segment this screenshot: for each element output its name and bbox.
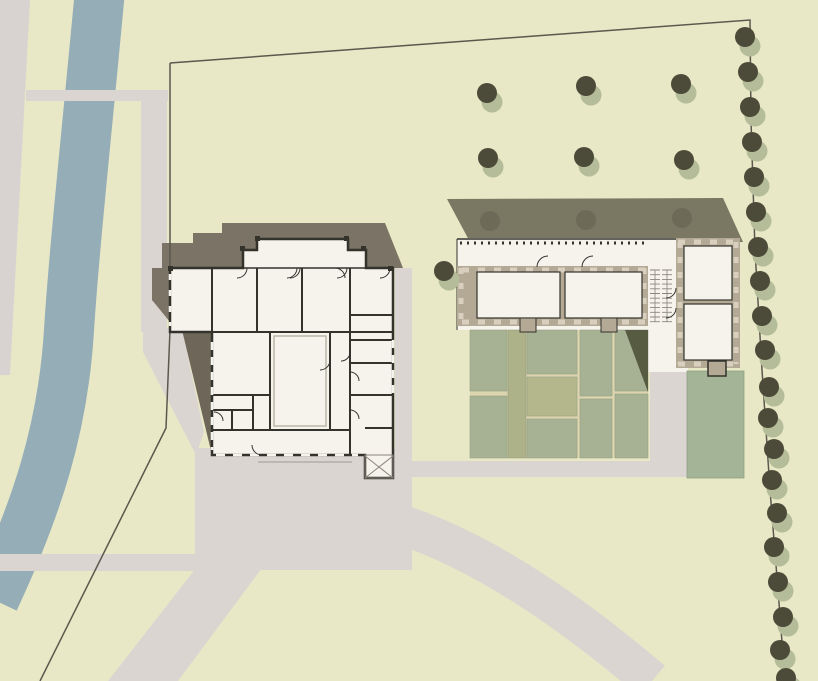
tree-icon: [477, 83, 497, 103]
tree-icon: [576, 76, 596, 96]
tree-icon: [764, 439, 784, 459]
garden-plot: [615, 394, 648, 458]
tree-icon: [738, 62, 758, 82]
tree-icon: [758, 408, 778, 428]
tree-icon: [746, 202, 766, 222]
east-wing-room: [684, 246, 732, 300]
tree-icon: [755, 340, 775, 360]
garden-plot: [470, 330, 507, 391]
path-garden-east: [650, 368, 688, 464]
tree-icon: [671, 74, 691, 94]
path-bottom-west: [0, 554, 196, 571]
garden-plot: [527, 419, 577, 458]
site-plan-svg: [0, 0, 818, 681]
wall-corner-block: [361, 246, 366, 251]
tree-icon: [773, 607, 793, 627]
path-east-of-west-building: [395, 268, 412, 455]
east-room: [477, 272, 560, 318]
wall-corner-block: [255, 236, 260, 241]
garden-strip: [508, 330, 526, 458]
tree-icon: [574, 147, 594, 167]
roof-tree-shadow: [576, 210, 596, 230]
wall-corner-block: [168, 266, 173, 271]
path-mid-east: [412, 461, 690, 477]
garden-plot: [527, 377, 577, 416]
garden-porch: [520, 318, 536, 332]
tree-icon: [767, 503, 787, 523]
tree-icon: [768, 572, 788, 592]
east-room: [565, 272, 642, 318]
roof-tree-shadow: [672, 208, 692, 228]
tree-icon: [752, 306, 772, 326]
tree-icon: [740, 97, 760, 117]
tree-icon: [735, 27, 755, 47]
garden-porch: [601, 318, 617, 332]
garden-plot: [470, 396, 507, 458]
tree-icon: [434, 261, 454, 281]
lawn-east: [687, 371, 744, 478]
tree-icon: [750, 271, 770, 291]
wall-corner-block: [240, 246, 245, 251]
tree-icon: [478, 148, 498, 168]
tree-icon: [674, 150, 694, 170]
site-plan: [0, 0, 818, 681]
garden-plot: [527, 330, 577, 374]
tree-icon: [762, 470, 782, 490]
wall-corner-block: [388, 266, 393, 271]
tree-icon: [764, 537, 784, 557]
tree-icon: [744, 167, 764, 187]
garden-plot: [580, 330, 612, 396]
roof-tree-shadow: [480, 211, 500, 231]
tree-icon: [742, 132, 762, 152]
garden-plot: [580, 399, 612, 458]
tree-icon: [759, 377, 779, 397]
wall-corner-block: [344, 236, 349, 241]
east-wing-room: [684, 304, 732, 360]
tree-icon: [748, 237, 768, 257]
wing-porch: [708, 361, 726, 376]
tree-icon: [770, 640, 790, 660]
